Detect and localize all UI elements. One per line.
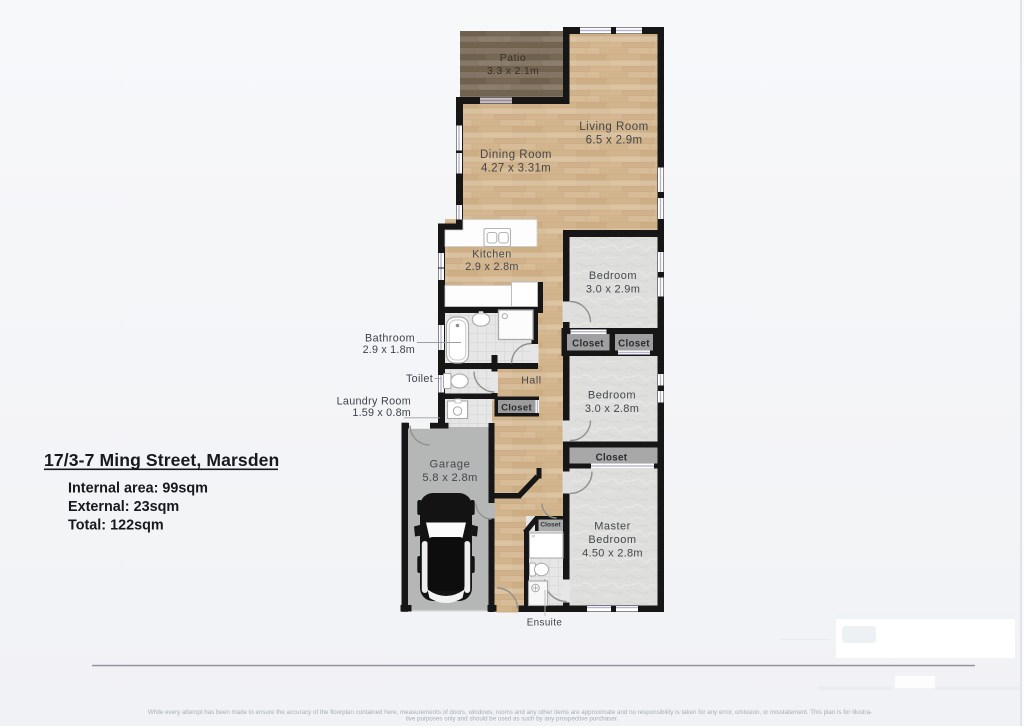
svg-text:Bedroom: Bedroom xyxy=(588,390,636,402)
svg-text:Closet: Closet xyxy=(596,453,628,464)
svg-text:Total: 122sqm: Total: 122sqm xyxy=(68,518,164,534)
svg-text:Living Room: Living Room xyxy=(579,121,648,133)
svg-text:Master: Master xyxy=(594,521,631,533)
svg-text:Bedroom: Bedroom xyxy=(588,534,636,546)
svg-text:3.0 x 2.8m: 3.0 x 2.8m xyxy=(585,403,639,415)
svg-text:Bedroom: Bedroom xyxy=(589,270,637,282)
svg-text:2.9 x 1.8m: 2.9 x 1.8m xyxy=(363,344,415,356)
svg-text:Garage: Garage xyxy=(430,459,471,471)
svg-text:6.5 x 2.9m: 6.5 x 2.9m xyxy=(586,135,643,147)
svg-text:Closet: Closet xyxy=(540,522,561,529)
svg-text:Closet: Closet xyxy=(618,339,650,350)
svg-text:3.3 x 2.1m: 3.3 x 2.1m xyxy=(487,65,539,77)
svg-text:4.50 x 2.8m: 4.50 x 2.8m xyxy=(582,548,643,560)
svg-text:Hall: Hall xyxy=(521,375,542,387)
svg-text:1.59 x 0.8m: 1.59 x 0.8m xyxy=(352,407,411,419)
svg-text:5.8 x 2.8m: 5.8 x 2.8m xyxy=(422,472,477,484)
svg-text:Ensuite: Ensuite xyxy=(527,618,563,629)
svg-text:2.9 x 2.8m: 2.9 x 2.8m xyxy=(465,261,518,273)
svg-text:Patio: Patio xyxy=(500,52,526,64)
svg-text:External: 23sqm: External: 23sqm xyxy=(68,499,179,515)
svg-text:Closet: Closet xyxy=(501,403,532,414)
svg-text:3.0 x 2.9m: 3.0 x 2.9m xyxy=(586,284,640,296)
svg-text:Toilet: Toilet xyxy=(406,373,433,385)
svg-text:17/3-7 Ming Street, Marsden: 17/3-7 Ming Street, Marsden xyxy=(44,450,279,470)
svg-text:4.27 x 3.31m: 4.27 x 3.31m xyxy=(481,163,551,175)
svg-text:Laundry Room: Laundry Room xyxy=(337,396,411,408)
svg-text:tive purposes only and should: tive purposes only and should be used as… xyxy=(406,716,619,723)
svg-text:Internal area: 99sqm: Internal area: 99sqm xyxy=(68,481,208,497)
svg-text:Bathroom: Bathroom xyxy=(365,333,415,345)
svg-text:Closet: Closet xyxy=(572,339,604,350)
svg-text:Dining Room: Dining Room xyxy=(480,149,552,161)
svg-text:Kitchen: Kitchen xyxy=(472,249,512,261)
